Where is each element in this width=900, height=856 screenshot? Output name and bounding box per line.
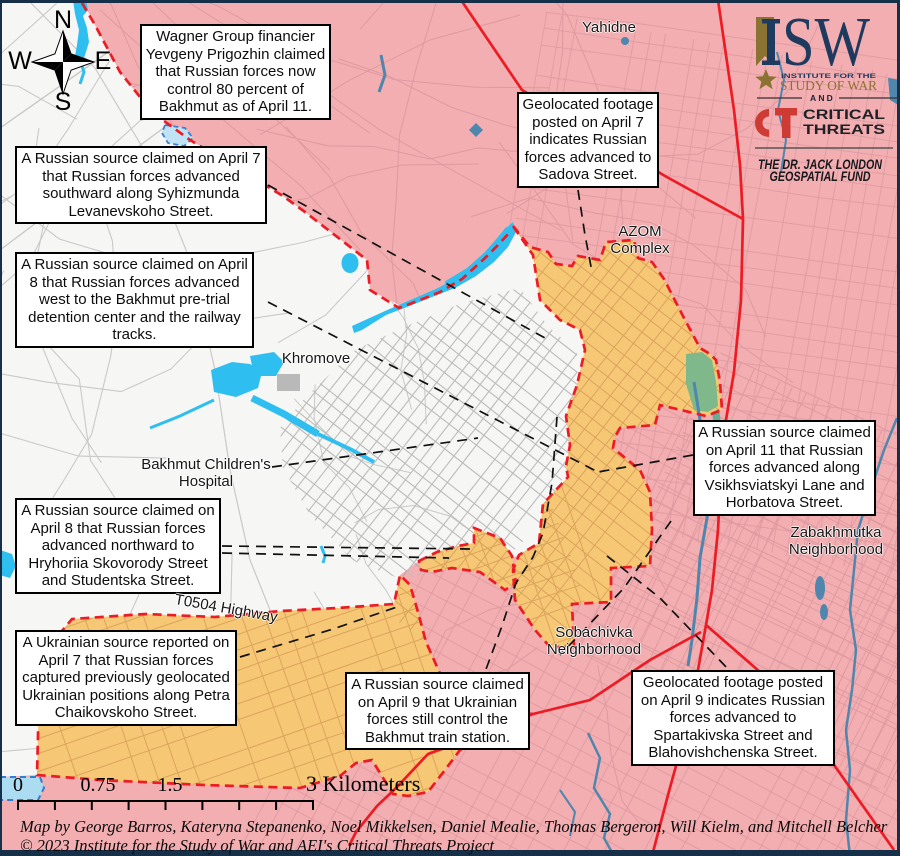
svg-text:AND: AND <box>810 93 835 103</box>
svg-text:SW: SW <box>782 4 870 81</box>
svg-text:GEOSPATIAL FUND: GEOSPATIAL FUND <box>770 168 871 184</box>
svg-text:STUDY OF WAR: STUDY OF WAR <box>780 78 877 93</box>
svg-text:CRITICAL: CRITICAL <box>803 107 885 122</box>
svg-text:THREATS: THREATS <box>803 122 885 137</box>
